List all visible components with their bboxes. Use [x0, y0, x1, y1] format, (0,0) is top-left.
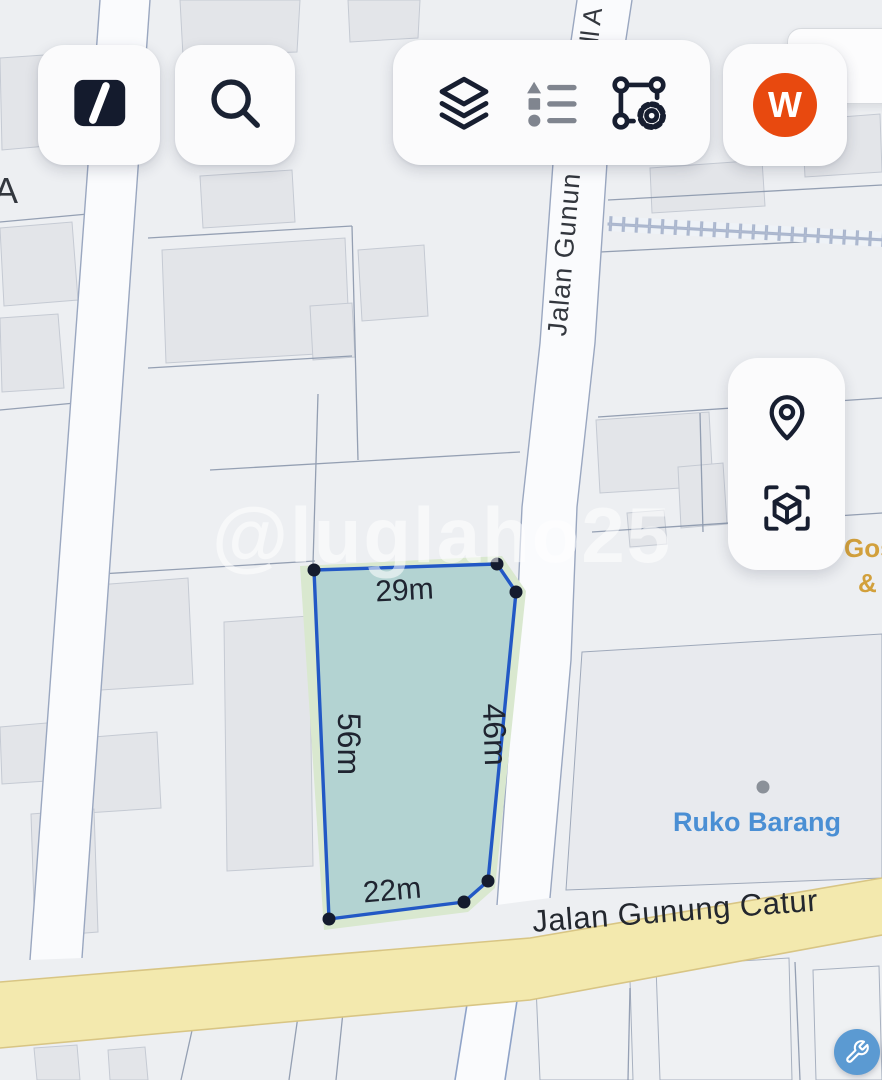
measure-bottom: 22m	[362, 872, 423, 910]
avatar-initial: W	[768, 84, 802, 126]
brand-slash-icon	[62, 69, 136, 142]
poi-dot-icon	[757, 781, 770, 794]
poi-gos-line1: Gos	[844, 533, 882, 563]
layers-button[interactable]	[433, 72, 495, 134]
polygon-settings-button[interactable]	[608, 72, 670, 134]
app-logo-button[interactable]	[38, 45, 160, 165]
settings-wrench-button[interactable]	[834, 1029, 880, 1075]
search-button[interactable]	[175, 45, 295, 165]
cube-3d-icon	[758, 479, 816, 537]
legend-list-icon	[522, 74, 580, 132]
magnifier-icon	[204, 72, 266, 139]
map-tools-group	[393, 40, 710, 165]
poi-ruko-label: Ruko Barang	[673, 807, 841, 837]
location-pin-icon	[760, 391, 814, 445]
poi-gos-line2: &	[858, 568, 877, 598]
layers-icon	[433, 72, 495, 134]
measure-left: 56m	[331, 713, 367, 775]
street-label-fragment-left: A	[0, 170, 18, 211]
map-side-panel	[728, 358, 845, 570]
legend-button[interactable]	[522, 74, 580, 132]
view-3d-button[interactable]	[758, 479, 816, 537]
map-app: @luglaho25 29m 56m 46m 22m Jalan Gunun l…	[0, 0, 882, 1080]
measure-top: 29m	[374, 573, 434, 609]
wrench-icon	[844, 1039, 870, 1065]
watermark: @luglaho25	[212, 491, 672, 579]
locate-button[interactable]	[760, 391, 814, 445]
measure-right: 46m	[476, 703, 514, 766]
street-label-fragment-top: ll A	[574, 5, 608, 44]
avatar: W	[753, 73, 817, 137]
account-button[interactable]: W	[723, 44, 847, 166]
polygon-gear-icon	[608, 72, 670, 134]
